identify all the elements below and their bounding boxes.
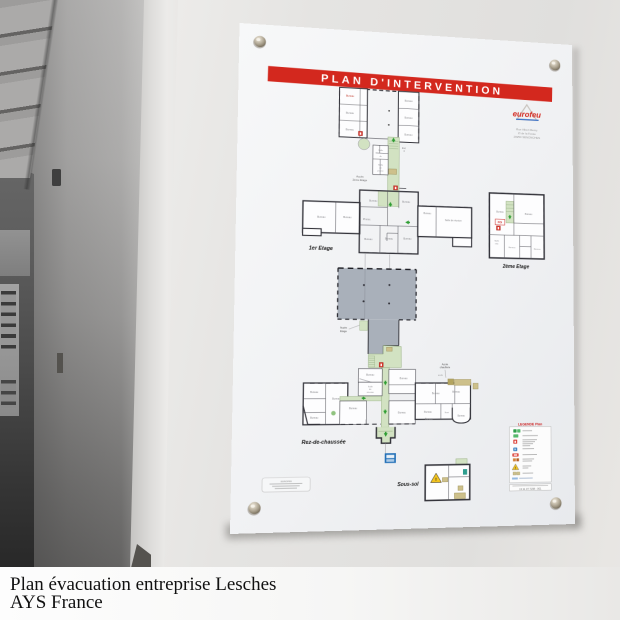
svg-text:Salle de réunion: Salle de réunion [445, 219, 462, 222]
svg-text:Bureau: Bureau [403, 237, 412, 241]
svg-text:Bureau: Bureau [346, 127, 355, 131]
svg-text:Bureau: Bureau [364, 237, 373, 241]
svg-text:Bureau: Bureau [346, 111, 355, 115]
svg-text:Bureau: Bureau [366, 374, 374, 377]
svg-text:Bureau: Bureau [400, 377, 408, 380]
svg-text:Bureau: Bureau [425, 418, 433, 421]
svg-text:1er Etage: 1er Etage [309, 246, 333, 252]
svg-text:Bureau: Bureau [346, 94, 355, 98]
svg-text:Bureau: Bureau [349, 407, 358, 410]
svg-text:Bureau: Bureau [317, 215, 326, 219]
svg-text:POI: POI [498, 221, 502, 225]
svg-text:accès: accès [438, 375, 443, 377]
svg-text:Bureau: Bureau [432, 392, 440, 395]
svg-text:réunion: réunion [367, 392, 375, 394]
svg-text:Bureau: Bureau [398, 411, 406, 414]
svg-text:Bureau: Bureau [402, 200, 410, 204]
svg-text:Sous-sol: Sous-sol [397, 482, 419, 488]
svg-text:Rez-de-chaussée: Rez-de-chaussée [302, 440, 346, 446]
svg-text:Salle: Salle [494, 240, 499, 242]
svg-text:Bureau: Bureau [458, 415, 466, 418]
svg-text:2ème Etage: 2ème Etage [352, 178, 367, 182]
svg-text:Salle: Salle [368, 386, 374, 388]
svg-text:LEGENDE Plan: LEGENDE Plan [518, 423, 542, 427]
svg-text:Salle: Salle [378, 165, 384, 167]
svg-text:Bureau: Bureau [385, 237, 394, 241]
svg-text:Bureau: Bureau [310, 391, 319, 394]
svg-text:Bureau: Bureau [424, 411, 432, 414]
svg-text:Bureau: Bureau [534, 249, 541, 251]
svg-text:Photoc.: Photoc. [363, 218, 371, 221]
svg-text:2ème Etage: 2ème Etage [502, 264, 530, 270]
svg-text:eurofeu: eurofeu [513, 109, 542, 120]
svg-text:Bureau: Bureau [332, 398, 341, 401]
svg-text:EUROFEU: EUROFEU [281, 481, 293, 483]
svg-text:pause: pause [377, 171, 384, 173]
svg-text:Bureau: Bureau [310, 417, 319, 420]
svg-text:Bureau: Bureau [496, 211, 504, 214]
svg-text:Salle: Salle [378, 150, 383, 152]
svg-text:Bureau: Bureau [452, 391, 460, 394]
svg-text:chaufferie: chaufferie [440, 366, 451, 369]
svg-text:Bureau: Bureau [405, 99, 413, 103]
svg-text:Sani: Sani [445, 412, 450, 414]
svg-text:13 11 07 7298 - 001: 13 11 07 7298 - 001 [519, 487, 542, 491]
svg-text:Bureau: Bureau [369, 199, 378, 203]
svg-text:Bureau: Bureau [509, 247, 516, 249]
svg-text:Etage: Etage [340, 329, 347, 333]
svg-text:Bureau: Bureau [405, 116, 413, 120]
svg-text:Bureau: Bureau [525, 213, 533, 216]
svg-text:Bureau: Bureau [404, 133, 412, 137]
svg-text:!: ! [515, 466, 516, 470]
svg-text:Bureau: Bureau [343, 215, 352, 219]
svg-text:Bureau: Bureau [424, 212, 432, 215]
